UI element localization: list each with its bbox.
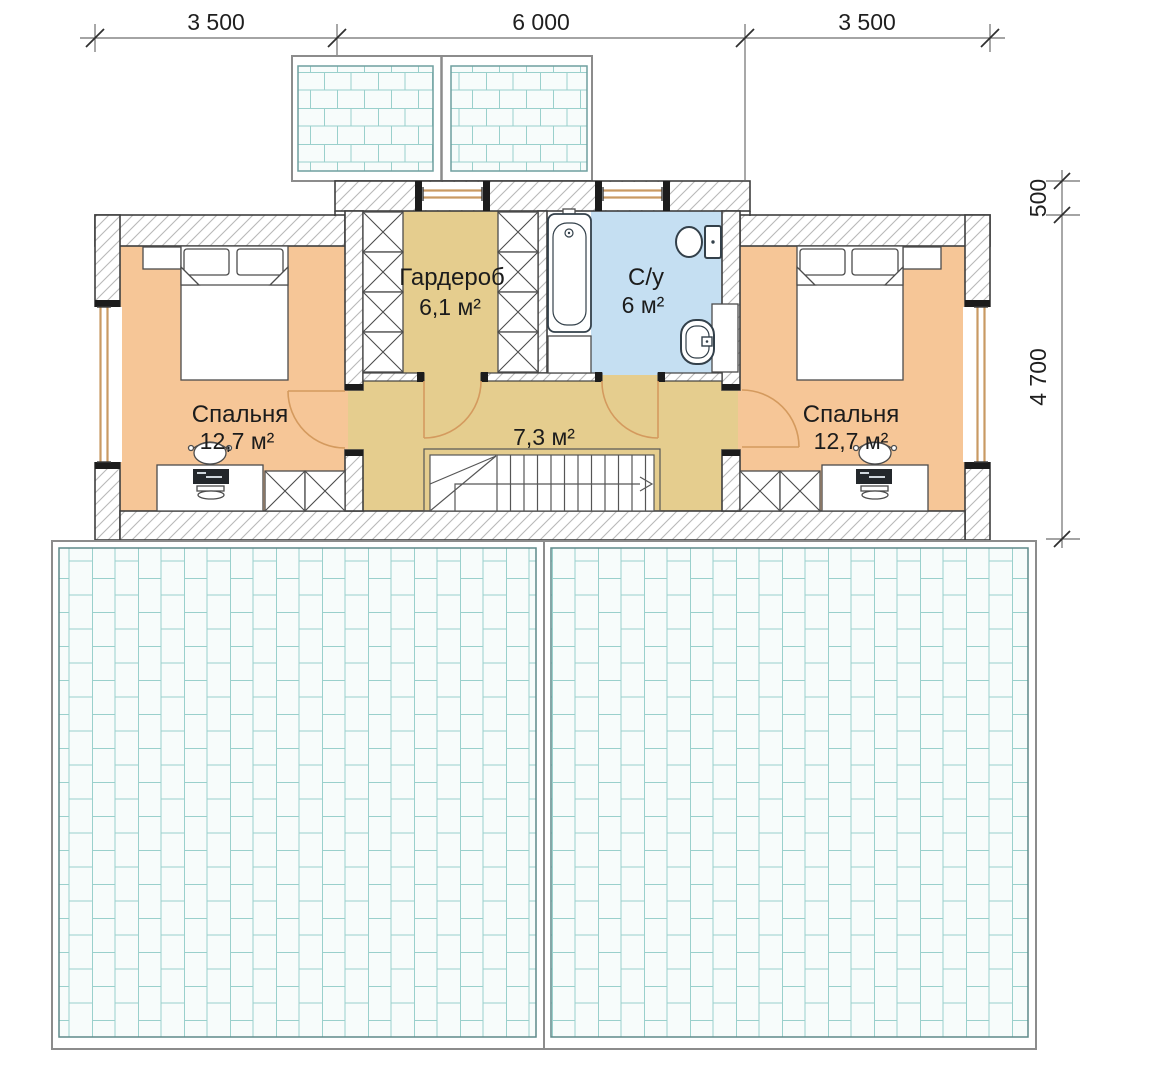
staircase <box>424 449 660 511</box>
roof-windows <box>292 56 592 181</box>
roof-window-left <box>298 66 433 171</box>
pillow <box>852 249 898 275</box>
wall-top-left <box>95 215 345 246</box>
room-label-bathroom: С/у <box>628 264 664 291</box>
pillow <box>237 249 283 275</box>
nightstand-left <box>143 247 181 269</box>
dim-right-main: 4 700 <box>1025 348 1051 406</box>
floor-plan-canvas: 3 500 6 000 3 500 <box>0 0 1149 1080</box>
dim-top-left: 3 500 <box>187 9 245 35</box>
pillow <box>184 249 229 275</box>
room-label-wardrobe: Гардероб <box>399 264 505 291</box>
room-label-bedroom-left: Спальня <box>192 401 288 428</box>
room-area-bedroom-left: 12,7 м² <box>200 428 275 454</box>
wall-hall-top-3 <box>658 373 722 381</box>
bathtub <box>548 209 591 332</box>
window-right <box>963 307 992 462</box>
floor-plan: Спальня 12,7 м² Спальня 12,7 м² Гардероб… <box>93 181 992 540</box>
room-area-wardrobe: 6,1 м² <box>419 294 481 320</box>
wall-top-right <box>740 215 990 246</box>
toilet <box>676 226 721 258</box>
roof-plane-left <box>59 548 536 1037</box>
dimension-chain-right: 500 4 700 <box>1025 170 1080 548</box>
room-area-bathroom: 6 м² <box>622 292 665 318</box>
closet-bedroom-left <box>265 471 345 511</box>
wall-wardrobe-bath <box>538 211 547 373</box>
room-label-bedroom-right: Спальня <box>803 401 899 428</box>
wall-bedroomright-lower <box>722 450 740 511</box>
dim-top-center: 6 000 <box>512 9 570 35</box>
wall-top-center <box>335 181 750 211</box>
window-top-wardrobe <box>422 182 483 210</box>
pillow <box>800 249 845 275</box>
dimension-tick <box>1046 173 1080 547</box>
room-area-hall: 7,3 м² <box>513 424 575 450</box>
window-top-bathroom <box>602 182 663 210</box>
wall-hall-top-1 <box>363 373 424 381</box>
washer-box <box>548 336 591 373</box>
dim-top-right: 3 500 <box>838 9 896 35</box>
wall-bedroomleft-upper <box>345 211 363 390</box>
window-left <box>93 307 122 462</box>
roof-planes <box>52 541 1036 1049</box>
dim-right-top: 500 <box>1025 179 1051 217</box>
nightstand-right <box>903 247 941 269</box>
closet-bedroom-right <box>740 471 820 511</box>
roof-plane-right <box>551 548 1028 1037</box>
roof-window-right <box>451 66 587 171</box>
wall-bottom <box>120 511 965 540</box>
wall-bedroomleft-lower <box>345 450 363 511</box>
wall-hall-top-2 <box>481 373 602 381</box>
room-area-bedroom-right: 12,7 м² <box>814 428 889 454</box>
